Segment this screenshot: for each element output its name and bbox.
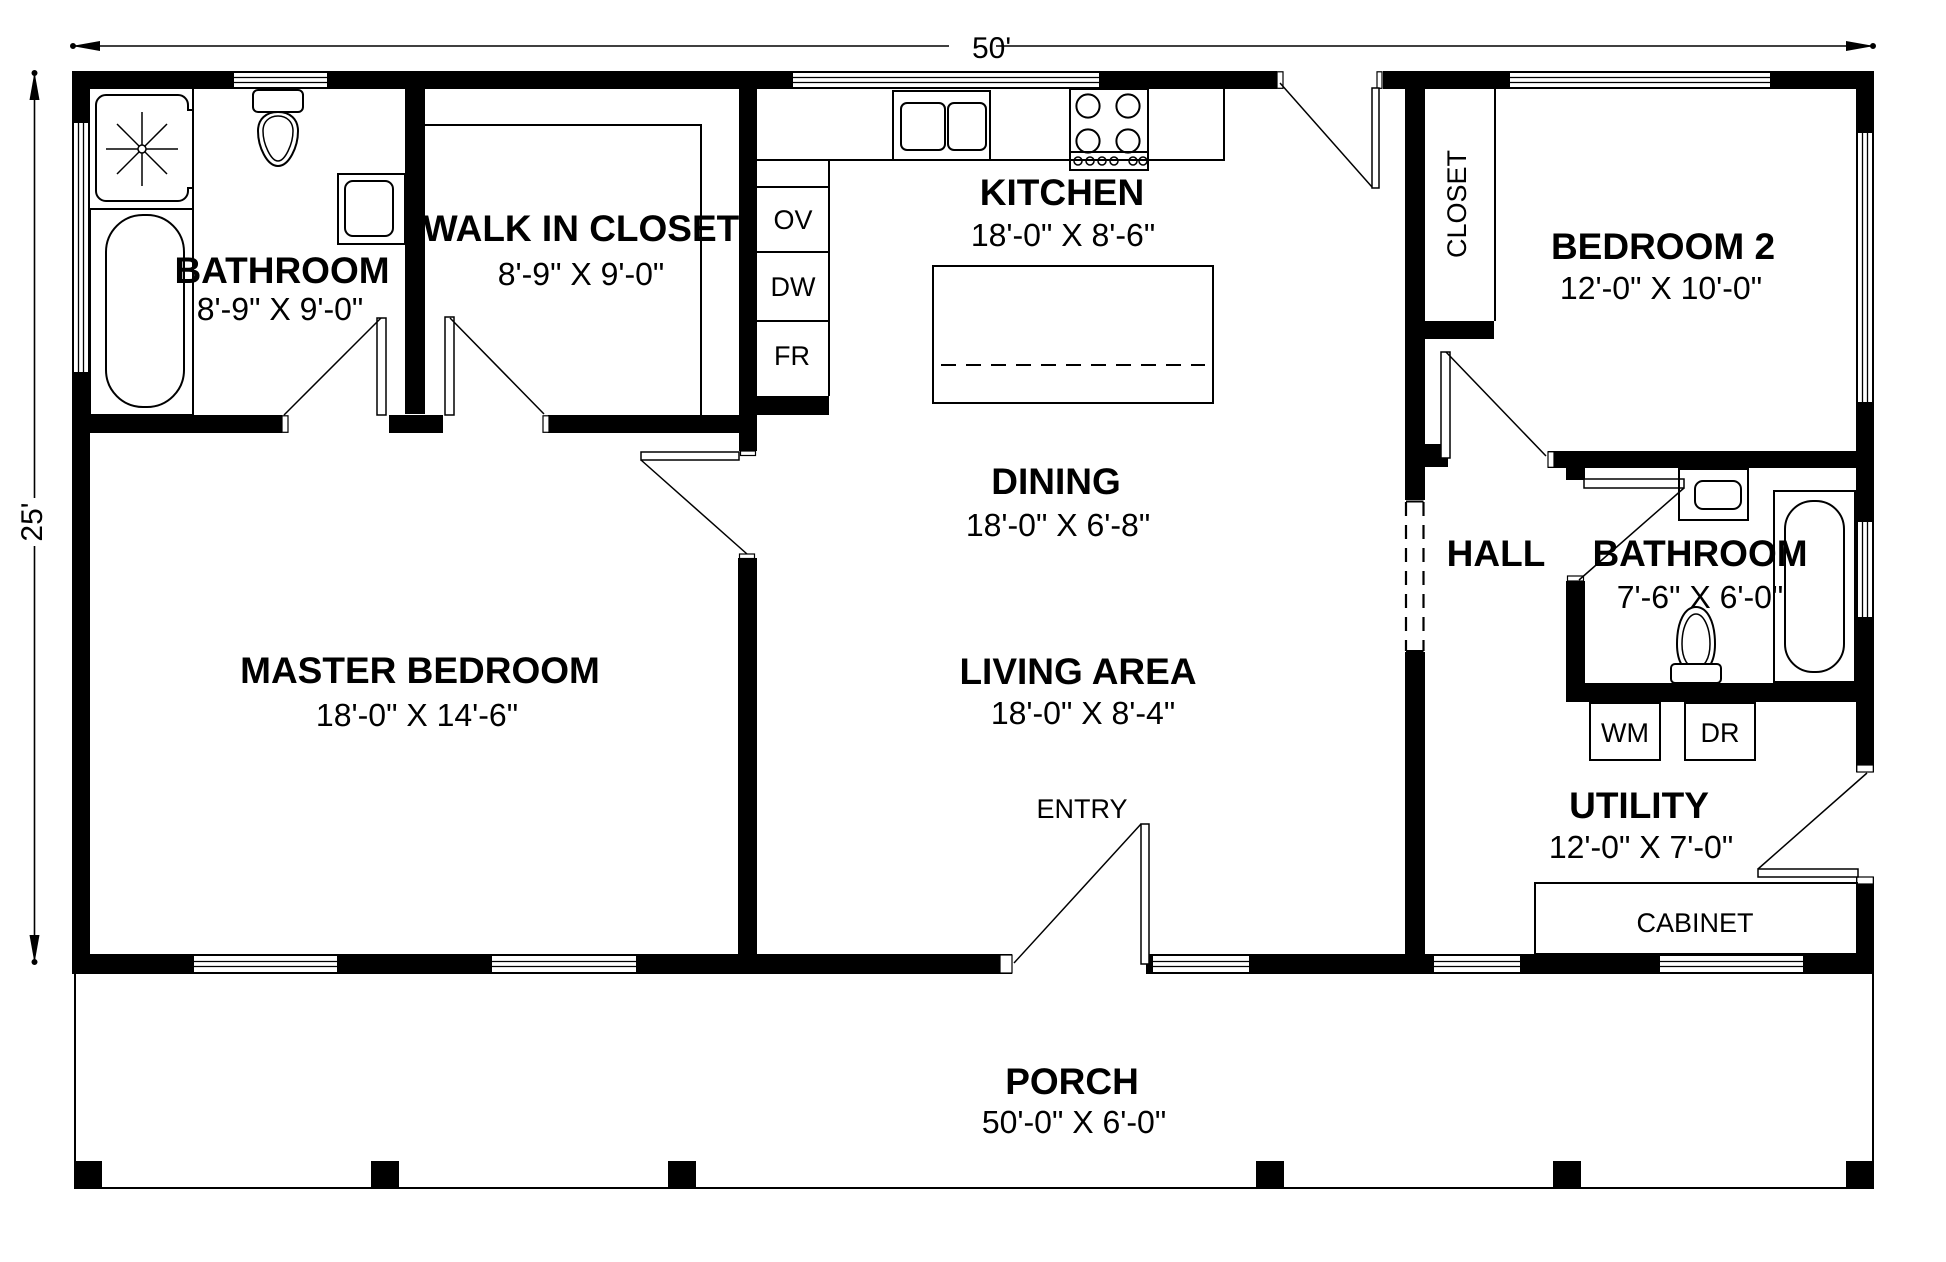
svg-text:UTILITY: UTILITY <box>1569 785 1709 826</box>
svg-text:BEDROOM 2: BEDROOM 2 <box>1551 226 1775 267</box>
svg-text:CABINET: CABINET <box>1636 908 1753 938</box>
svg-text:BATHROOM: BATHROOM <box>174 250 389 291</box>
svg-text:OV: OV <box>773 205 812 235</box>
svg-text:DR: DR <box>1701 718 1740 748</box>
svg-text:8'-9" X 9'-0": 8'-9" X 9'-0" <box>197 291 364 327</box>
svg-text:HALL: HALL <box>1447 533 1546 574</box>
svg-text:WALK IN CLOSET: WALK IN CLOSET <box>423 208 740 249</box>
svg-text:18'-0" X 8'-4": 18'-0" X 8'-4" <box>991 695 1175 731</box>
svg-text:18'-0" X 6'-8": 18'-0" X 6'-8" <box>966 507 1150 543</box>
svg-text:PORCH: PORCH <box>1005 1061 1139 1102</box>
svg-text:7'-6" X 6'-0": 7'-6" X 6'-0" <box>1617 579 1784 615</box>
svg-text:BATHROOM: BATHROOM <box>1592 533 1807 574</box>
svg-text:8'-9" X 9'-0": 8'-9" X 9'-0" <box>498 256 665 292</box>
svg-text:18'-0" X 8'-6": 18'-0" X 8'-6" <box>971 217 1155 253</box>
svg-text:ENTRY: ENTRY <box>1036 794 1127 824</box>
svg-text:12'-0" X 7'-0": 12'-0" X 7'-0" <box>1549 829 1733 865</box>
svg-text:CLOSET: CLOSET <box>1442 150 1472 258</box>
svg-text:DINING: DINING <box>991 461 1121 502</box>
svg-text:18'-0" X 14'-6": 18'-0" X 14'-6" <box>316 697 518 733</box>
svg-text:FR: FR <box>774 341 810 371</box>
svg-text:MASTER BEDROOM: MASTER BEDROOM <box>240 650 600 691</box>
svg-text:25': 25' <box>16 502 49 541</box>
svg-text:LIVING AREA: LIVING AREA <box>959 651 1196 692</box>
svg-text:50': 50' <box>972 32 1011 65</box>
svg-text:DW: DW <box>771 272 816 302</box>
svg-text:WM: WM <box>1601 718 1649 748</box>
svg-text:KITCHEN: KITCHEN <box>980 172 1144 213</box>
svg-text:50'-0" X 6'-0": 50'-0" X 6'-0" <box>982 1104 1166 1140</box>
svg-text:12'-0" X 10'-0": 12'-0" X 10'-0" <box>1560 270 1762 306</box>
